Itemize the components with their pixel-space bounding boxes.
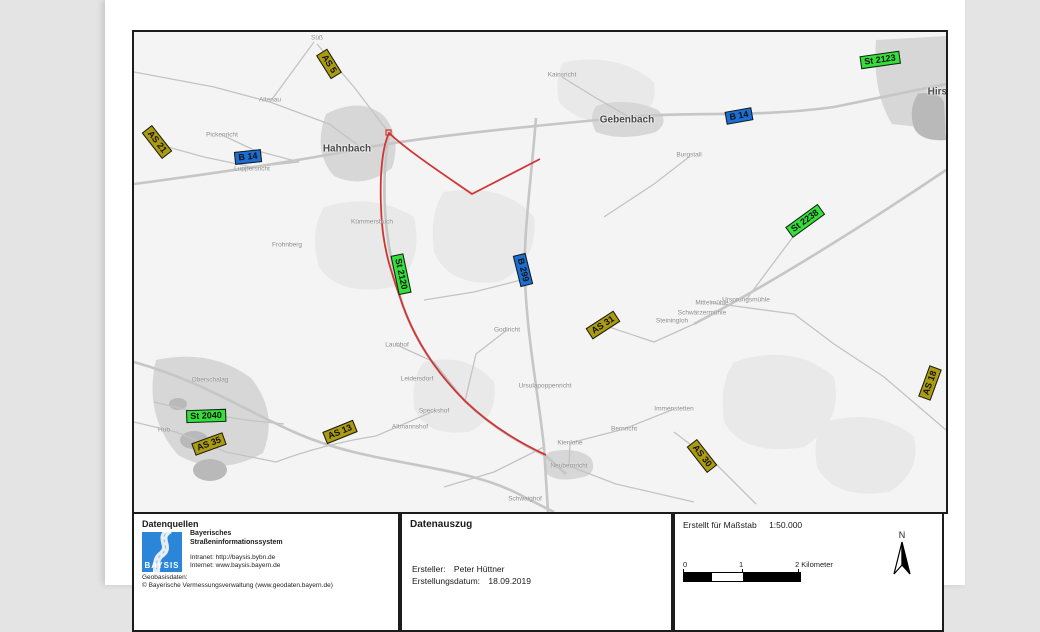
village-label-bernricht: Bernricht — [611, 426, 637, 433]
north-label: N — [890, 530, 914, 540]
village-label-pickenricht: Pickenricht — [206, 132, 238, 139]
village-label-kainsricht: Kainsricht — [548, 72, 577, 79]
datasources-box: Datenquellen BAYSIS Bayerisches Straßeni… — [132, 512, 400, 632]
scale-tick-mark — [683, 569, 684, 573]
baysis-logo: BAYSIS — [142, 532, 182, 572]
village-label-godlricht: Godlricht — [494, 327, 520, 334]
village-label-burgstall: Burgstall — [676, 152, 701, 159]
town-label-hahnbach: Hahnbach — [323, 144, 371, 155]
road-label-st-2040: St 2040 — [186, 409, 226, 423]
intranet-url: Intranet: http://baysis.bybn.de — [190, 554, 280, 562]
datasources-title: Datenquellen — [142, 519, 398, 529]
creation-date-value: 18.09.2019 — [488, 576, 531, 586]
baysis-logo-text: BAYSIS — [142, 561, 182, 570]
org-name-block: Bayerisches Straßeninformationssystem — [190, 530, 283, 547]
creator-label: Ersteller: — [412, 564, 446, 574]
geodata-credit: Geobasisdaten: © Bayerische Vermessungsv… — [142, 574, 333, 590]
dataextract-box: Datenauszug Ersteller: Peter Hüttner Ers… — [400, 512, 673, 632]
scale-segment-black — [684, 573, 712, 581]
geodata-label: Geobasisdaten: — [142, 574, 333, 582]
village-label-schwärzermühle: Schwärzermühle — [678, 310, 726, 317]
dataextract-title: Datenauszug — [410, 519, 671, 530]
map-frame: SüßAltenauKainsrichtBurgstallPickenricht… — [132, 30, 948, 514]
desktop-background: { "map": { "label_colors": { "AS": "#ab9… — [0, 0, 1040, 585]
village-label-altenau: Altenau — [259, 97, 281, 104]
creator-value: Peter Hüttner — [454, 564, 505, 574]
village-label-schwaighof: Schwaighof — [508, 496, 542, 503]
village-label-frohnberg: Frohnberg — [272, 242, 302, 249]
village-label-neubernricht: Neubernricht — [550, 463, 587, 470]
village-label-oberschalag: Oberschalag — [192, 377, 229, 384]
scale-segment-white — [712, 573, 743, 581]
geodata-copyright: © Bayerische Vermessungsverwaltung (www.… — [142, 582, 333, 590]
village-label-kienlohe: Kienlohe — [557, 440, 582, 447]
creation-date-line: Erstellungsdatum: 18.09.2019 — [412, 576, 531, 588]
village-label-kümmersbuch: Kümmersbuch — [351, 219, 393, 226]
scale-number-2: 2 Kilometer — [795, 560, 833, 569]
village-label-süß: Süß — [311, 35, 323, 42]
village-label-steiningloh: Steiningloh — [656, 318, 688, 325]
town-label-hirschau: Hirschau — [928, 87, 948, 98]
town-label-gebenbach: Gebenbach — [600, 115, 654, 126]
scale-value: 1:50.000 — [769, 520, 802, 530]
north-indicator: N — [890, 530, 914, 581]
org-name-line2: Straßeninformationssystem — [190, 539, 283, 548]
org-name-line1: Bayerisches — [190, 530, 283, 539]
village-label-speckshof: Speckshof — [419, 408, 449, 415]
internet-url: Internet: www.baysis.bayern.de — [190, 562, 280, 570]
village-label-hub: Hub — [158, 427, 170, 434]
village-label-ursulapoppenricht: Ursulapoppenricht — [519, 383, 572, 390]
print-page: SüßAltenauKainsrichtBurgstallPickenricht… — [105, 0, 965, 585]
scale-number-1: 1 — [739, 560, 743, 569]
network-links: Intranet: http://baysis.bybn.de Internet… — [190, 554, 280, 570]
scale-statement: Erstellt für Maßstab 1:50.000 — [683, 520, 942, 530]
scale-statement-label: Erstellt für Maßstab — [683, 520, 757, 530]
scale-numbers: 012 Kilometer — [683, 560, 883, 570]
basemap-graphic — [134, 32, 946, 512]
scale-segment-black — [743, 573, 800, 581]
north-arrow-icon — [890, 540, 914, 576]
village-label-altmannshof: Altmannshof — [392, 424, 428, 431]
village-label-luppersricht: Luppersricht — [234, 166, 270, 173]
scale-tick-mark — [798, 569, 799, 573]
scale-box: Erstellt für Maßstab 1:50.000 N 012 Kilo… — [673, 512, 944, 632]
village-label-laubhof: Laubhof — [385, 342, 409, 349]
scale-bar — [683, 572, 801, 582]
scale-tick-mark — [742, 569, 743, 573]
scale-number-0: 0 — [683, 560, 687, 569]
creator-info: Ersteller: Peter Hüttner Erstellungsdatu… — [412, 564, 531, 587]
village-label-ursprungsmühle: Ursprungsmühle — [722, 297, 770, 304]
creation-date-label: Erstellungsdatum: — [412, 576, 480, 586]
creator-line: Ersteller: Peter Hüttner — [412, 564, 531, 576]
scale-bar-group: 012 Kilometer — [683, 560, 883, 582]
village-label-leidersdorf: Leidersdorf — [401, 376, 434, 383]
village-label-immenstetten: Immenstetten — [654, 406, 693, 413]
map-canvas: SüßAltenauKainsrichtBurgstallPickenricht… — [134, 32, 946, 512]
